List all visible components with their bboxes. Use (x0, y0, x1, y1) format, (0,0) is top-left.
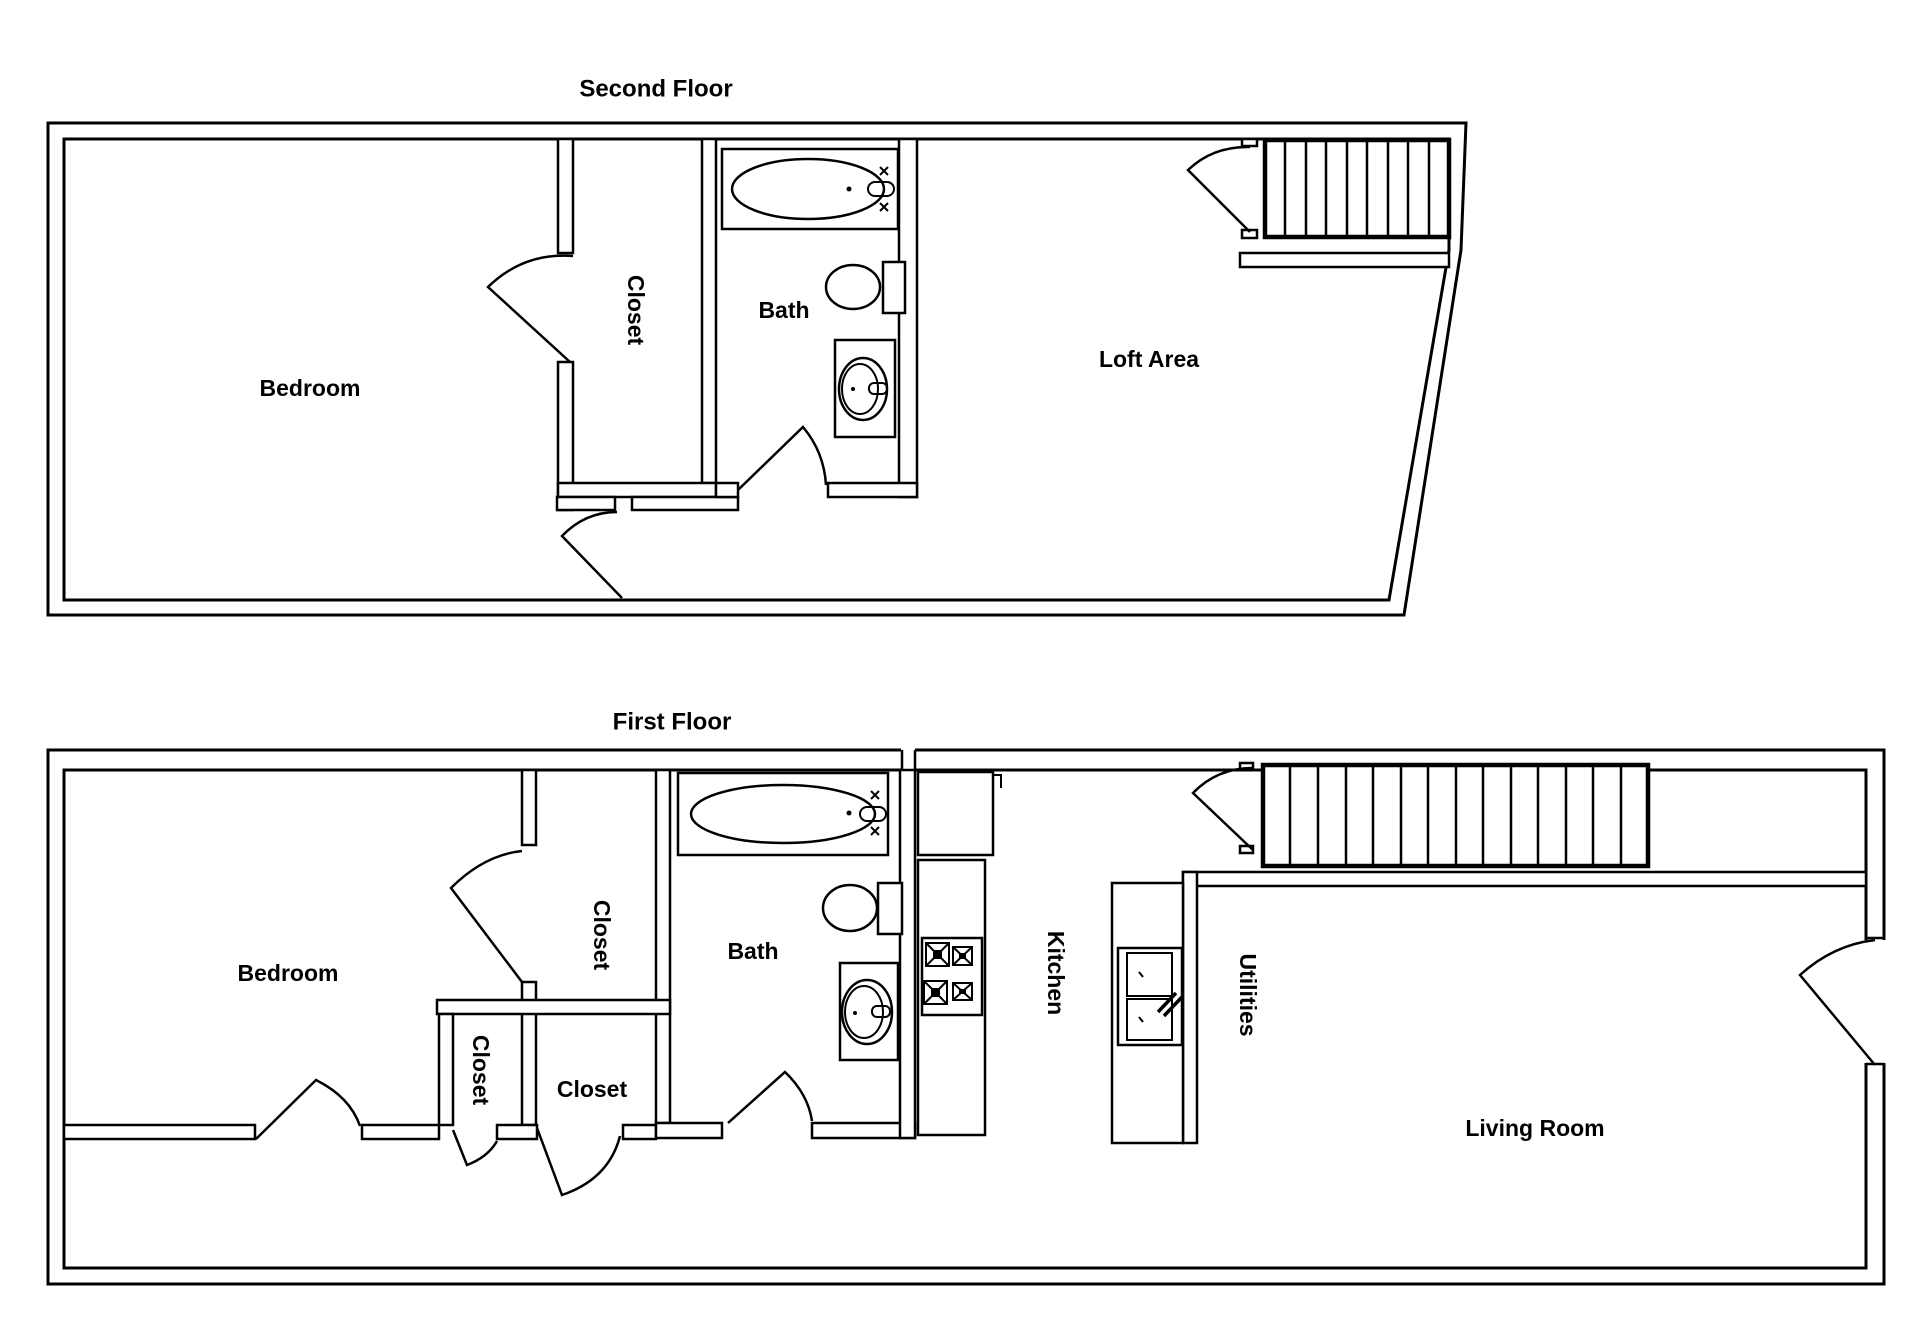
wall (632, 497, 738, 510)
door-swing (256, 1080, 360, 1139)
wall (558, 483, 716, 497)
wall (900, 770, 915, 1138)
wall (437, 1000, 670, 1014)
wall (716, 483, 738, 497)
wall (439, 1014, 453, 1125)
wall (1183, 872, 1866, 886)
room-label-bath: Bath (758, 297, 809, 323)
door-swing (738, 427, 826, 490)
floorplan-page: Second Floor (0, 0, 1920, 1333)
first-floor-title: First Floor (613, 709, 732, 736)
wall (64, 1125, 255, 1139)
wall (623, 1125, 656, 1139)
room-label-kitchen: Kitchen (1043, 931, 1069, 1015)
room-label-bedroom: Bedroom (260, 375, 361, 401)
wall (1183, 872, 1197, 1143)
kitchen-sink-icon (1112, 883, 1183, 1143)
door-swing (537, 1128, 620, 1195)
door-swing (562, 512, 622, 598)
room-label-bedroom: Bedroom (238, 960, 339, 986)
second-floor-plan: Second Floor (48, 76, 1466, 616)
sink-icon (840, 963, 898, 1060)
first-floor-plan: First Floor (48, 709, 1890, 1285)
stairs-icon (1263, 765, 1648, 866)
door-swing (453, 1130, 497, 1165)
wall (702, 139, 716, 483)
wall-gap (1860, 940, 1890, 1063)
door-swing (728, 1072, 812, 1123)
toilet-icon (823, 883, 902, 934)
toilet-icon (826, 262, 905, 313)
stove-icon (922, 938, 982, 1015)
room-label-living-room: Living Room (1465, 1115, 1604, 1141)
wall (656, 770, 670, 1123)
bathtub-icon (722, 149, 898, 229)
wall (1240, 253, 1449, 267)
door-swing (451, 851, 522, 982)
sink-icon (835, 340, 895, 437)
wall (828, 483, 917, 497)
wall (899, 139, 917, 497)
room-label-closet: Closet (623, 275, 649, 346)
door-swing (1188, 147, 1250, 232)
wall (656, 1123, 722, 1138)
room-label-closet-upper: Closet (589, 900, 615, 971)
room-label-closet-center: Closet (557, 1076, 628, 1102)
wall (522, 770, 536, 845)
bathtub-icon (678, 773, 888, 855)
wall (557, 497, 615, 510)
stairs-icon (1265, 140, 1449, 237)
second-floor-title: Second Floor (579, 76, 732, 103)
door-jamb (1242, 139, 1257, 146)
door-swing (488, 256, 573, 362)
room-label-utilities: Utilities (1235, 953, 1261, 1036)
wall (362, 1125, 439, 1139)
door-swing (1193, 768, 1253, 850)
wall (558, 139, 573, 253)
room-label-bath: Bath (727, 938, 778, 964)
room-label-loft-area: Loft Area (1099, 346, 1199, 372)
room-label-closet-small: Closet (468, 1035, 494, 1106)
floorplan-canvas: Second Floor (0, 0, 1920, 1333)
wall (497, 1125, 537, 1139)
